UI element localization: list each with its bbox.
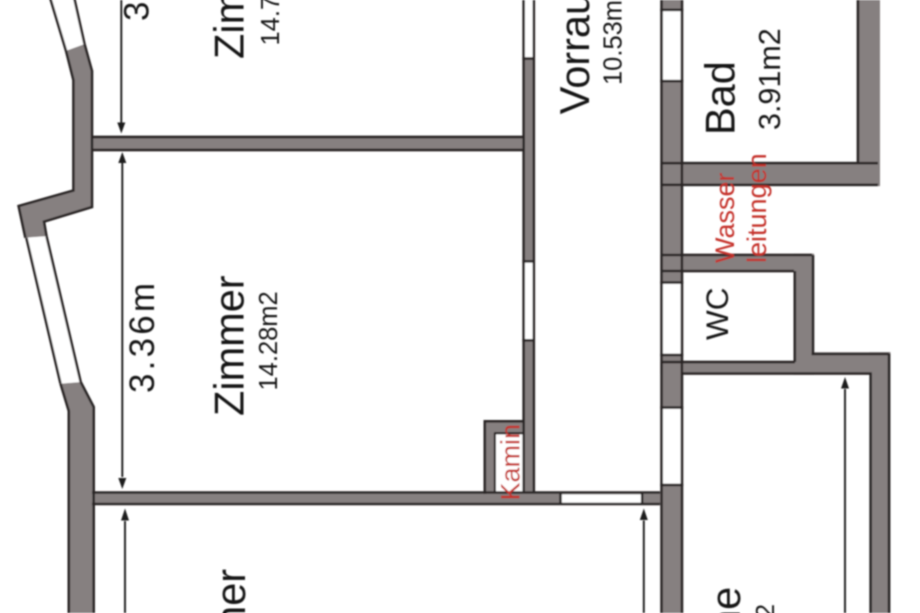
- svg-text:3.36m: 3.36m: [118, 0, 157, 21]
- svg-text:Vorraum: Vorraum: [551, 0, 598, 114]
- svg-text:9.82m2: 9.82m2: [752, 604, 780, 613]
- svg-text:leitungen: leitungen: [742, 153, 772, 263]
- svg-text:3.91m2: 3.91m2: [753, 28, 787, 130]
- svg-text:Zimmer: Zimmer: [206, 275, 253, 416]
- svg-text:10.53m2: 10.53m2: [600, 0, 628, 85]
- svg-text:14.73m2: 14.73m2: [257, 0, 285, 46]
- svg-text:Wasser: Wasser: [710, 172, 740, 263]
- svg-text:Bad: Bad: [697, 61, 744, 135]
- svg-text:WC: WC: [699, 288, 735, 340]
- svg-text:Zimmer: Zimmer: [206, 0, 253, 59]
- svg-text:3.36m: 3.36m: [123, 280, 162, 393]
- svg-text:Küche: Küche: [702, 587, 749, 613]
- svg-text:Kamin: Kamin: [496, 424, 526, 501]
- svg-text:14.28m2: 14.28m2: [255, 291, 283, 390]
- svg-text:Zimmer: Zimmer: [207, 569, 254, 613]
